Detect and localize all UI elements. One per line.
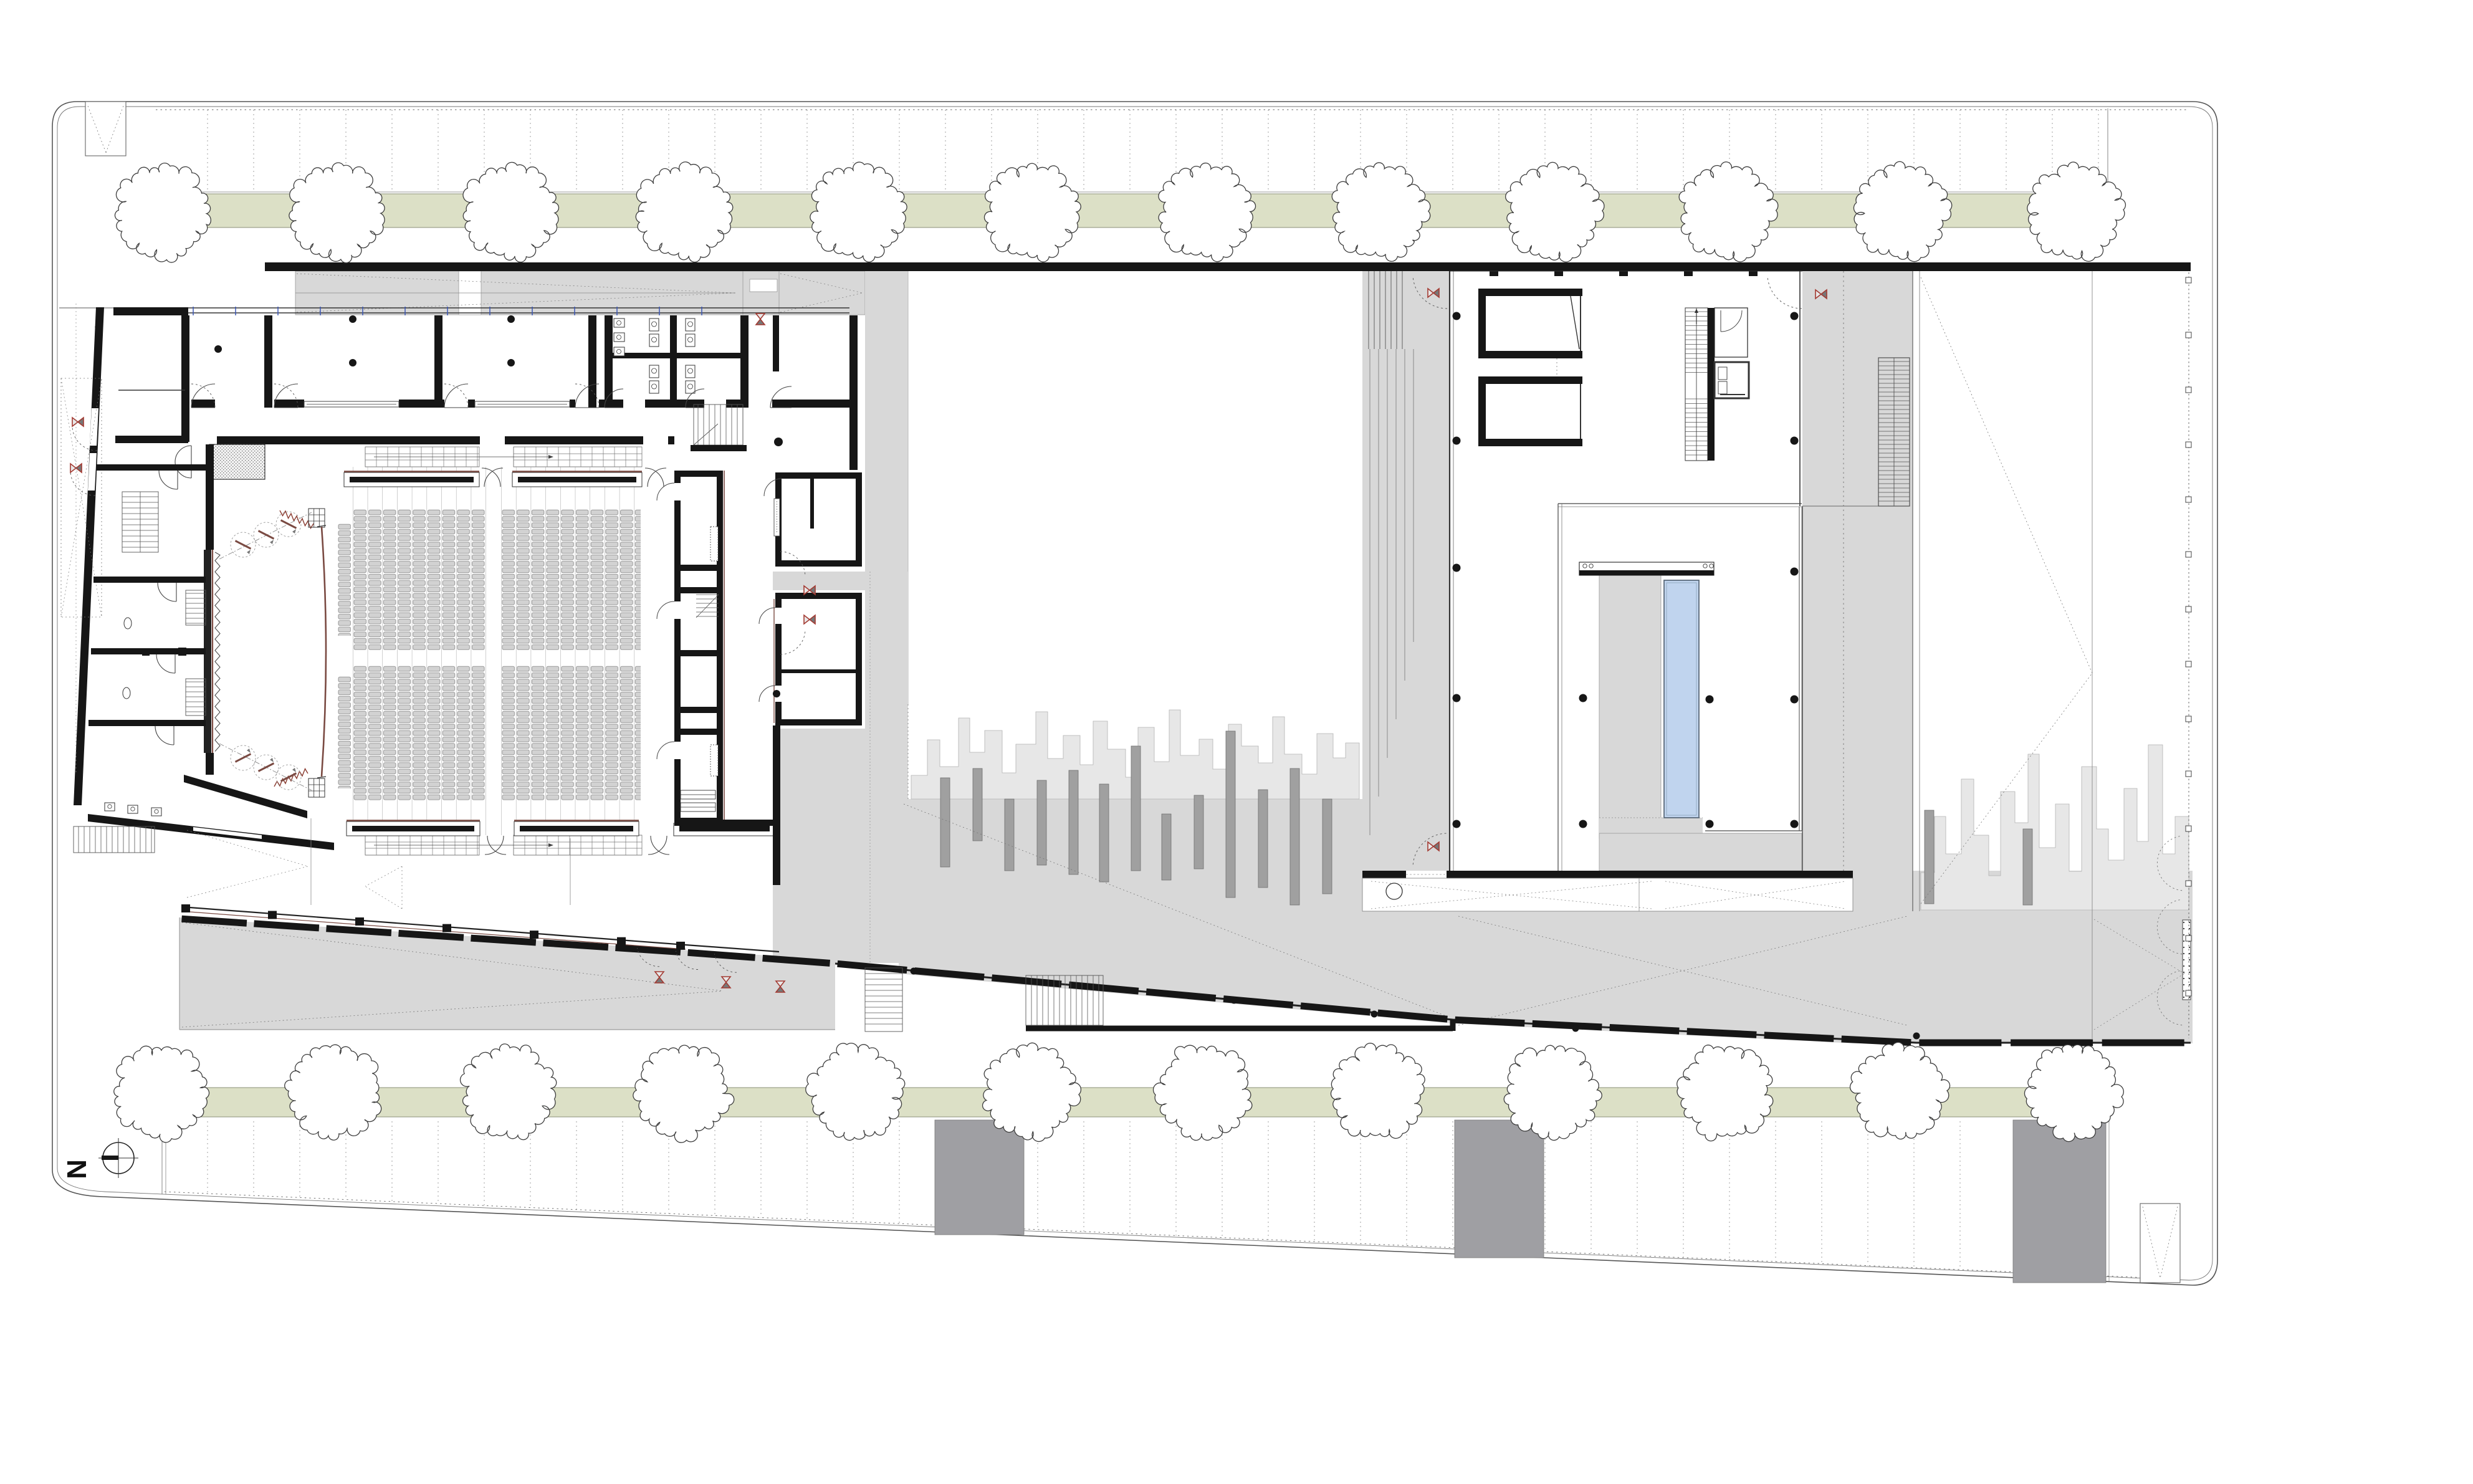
svg-text:N: N [62, 1159, 92, 1179]
